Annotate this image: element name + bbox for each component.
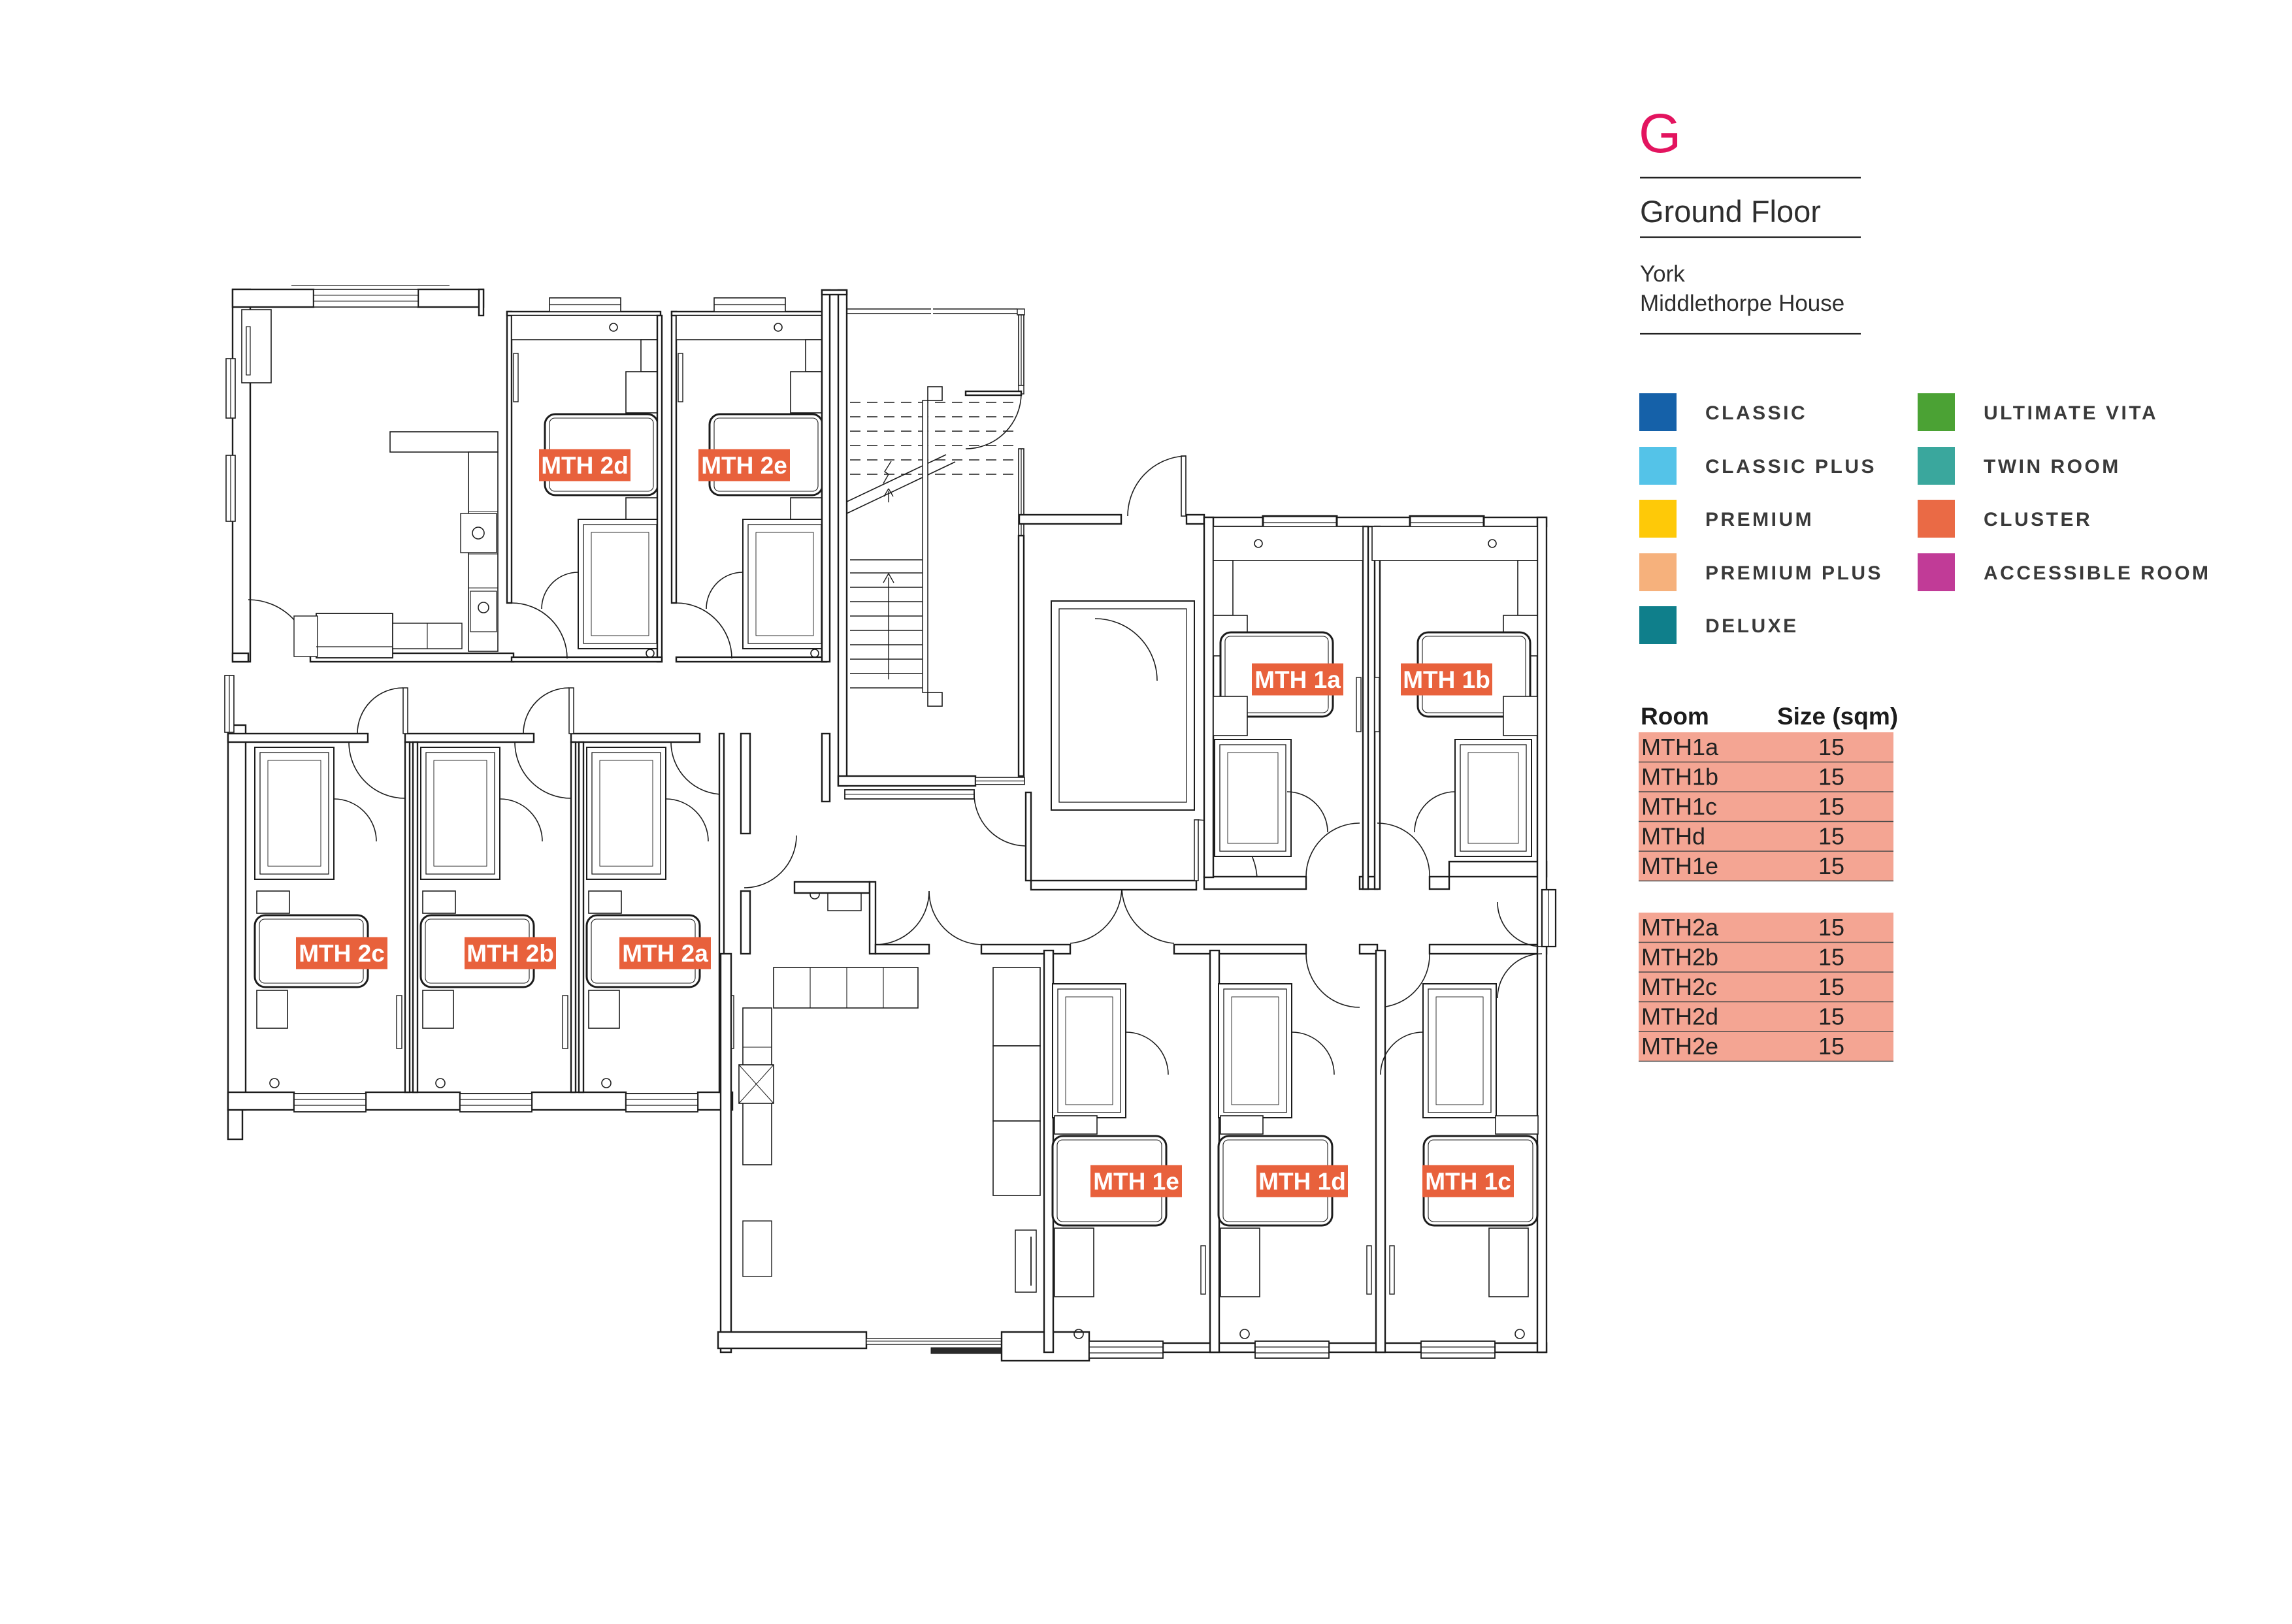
svg-text:15: 15 [1818,764,1844,790]
svg-text:G: G [1639,103,1681,164]
svg-text:MTH 1b: MTH 1b [1403,666,1490,693]
svg-text:ULTIMATE VITA: ULTIMATE VITA [1984,402,2158,424]
svg-text:MTH 2b: MTH 2b [467,940,554,967]
svg-text:15: 15 [1818,853,1844,879]
svg-text:15: 15 [1818,1033,1844,1060]
svg-text:MTH1e: MTH1e [1641,853,1718,879]
svg-text:MTH1c: MTH1c [1641,793,1717,820]
svg-text:MTH2a: MTH2a [1641,914,1719,941]
svg-text:15: 15 [1818,734,1844,760]
svg-text:Middlethorpe House: Middlethorpe House [1640,291,1844,316]
svg-text:Size (sqm): Size (sqm) [1777,703,1898,730]
svg-text:MTH1a: MTH1a [1641,734,1719,760]
svg-text:DELUXE: DELUXE [1705,615,1799,637]
svg-text:MTH 2e: MTH 2e [701,452,787,479]
svg-text:15: 15 [1818,973,1844,1000]
svg-text:TWIN ROOM: TWIN ROOM [1984,456,2121,478]
svg-text:MTH 1a: MTH 1a [1254,666,1341,693]
svg-text:15: 15 [1818,823,1844,850]
svg-text:MTH2b: MTH2b [1641,944,1718,971]
svg-text:15: 15 [1818,944,1844,971]
svg-text:MTH 1e: MTH 1e [1093,1168,1179,1195]
svg-text:CLASSIC: CLASSIC [1705,402,1807,424]
svg-text:MTH2d: MTH2d [1641,1003,1718,1030]
svg-text:MTH2c: MTH2c [1641,973,1717,1000]
svg-text:MTHd: MTHd [1641,823,1705,850]
svg-text:ACCESSIBLE ROOM: ACCESSIBLE ROOM [1984,562,2211,584]
svg-text:MTH 2c: MTH 2c [299,940,385,967]
svg-text:15: 15 [1818,793,1844,820]
svg-text:MTH1b: MTH1b [1641,764,1718,790]
svg-text:CLUSTER: CLUSTER [1984,509,2092,530]
svg-text:15: 15 [1818,1003,1844,1030]
svg-text:MTH2e: MTH2e [1641,1033,1718,1060]
svg-text:MTH 2d: MTH 2d [541,452,629,479]
svg-text:MTH 2a: MTH 2a [622,940,708,967]
svg-text:MTH 1c: MTH 1c [1425,1168,1511,1195]
svg-text:CLASSIC PLUS: CLASSIC PLUS [1705,456,1876,478]
svg-text:Room: Room [1641,703,1709,730]
svg-text:York: York [1640,261,1685,287]
svg-text:MTH 1d: MTH 1d [1258,1168,1346,1195]
svg-text:15: 15 [1818,914,1844,941]
svg-text:Ground Floor: Ground Floor [1640,194,1821,229]
svg-text:PREMIUM: PREMIUM [1705,509,1814,530]
svg-text:PREMIUM PLUS: PREMIUM PLUS [1705,562,1883,584]
